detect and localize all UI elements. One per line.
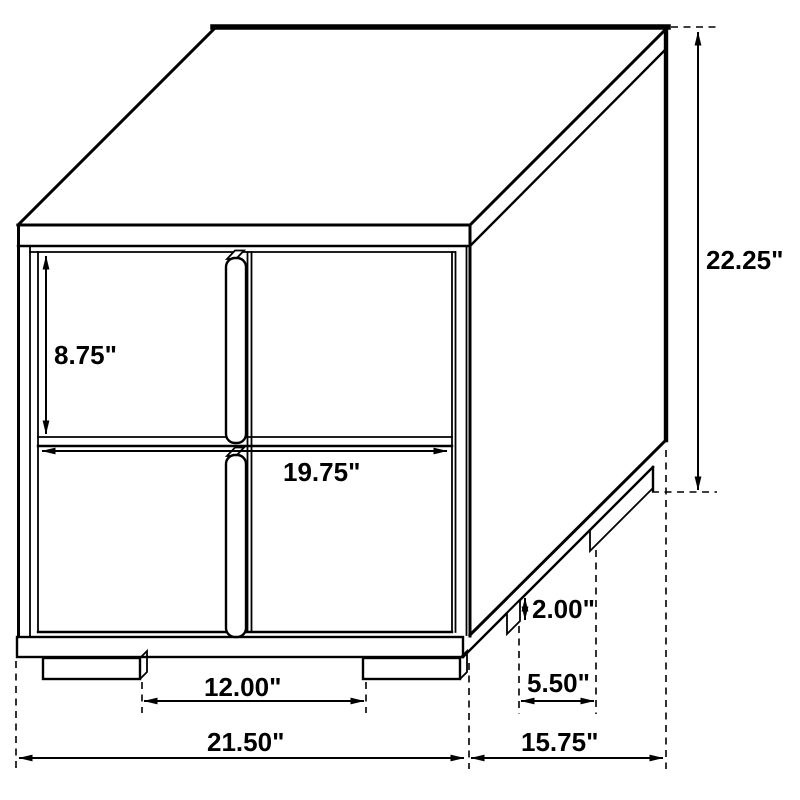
overall-depth-label: 15.75" [521, 727, 598, 757]
dimension-front-leg-spacing: 12.00" [144, 672, 364, 702]
overall-width-label: 21.50" [207, 727, 284, 757]
drawer-handles [226, 251, 246, 638]
dimension-diagram-canvas: 22.25" 8.75" 19.75" 12.00" 21.50" 2.00" … [0, 0, 800, 800]
drawer-height-label: 8.75" [54, 340, 117, 370]
front-leg-spacing-label: 12.00" [204, 672, 281, 702]
side-leg-spacing-label: 5.50" [527, 668, 590, 698]
nightstand-dimension-diagram: 22.25" 8.75" 19.75" 12.00" 21.50" 2.00" … [0, 0, 800, 800]
drawer-width-label: 19.75" [283, 457, 360, 487]
dimension-overall-depth: 15.75" [471, 727, 663, 758]
bottom-drawer-handle [226, 448, 246, 638]
top-panel [18, 27, 668, 246]
top-drawer-handle [226, 251, 246, 444]
dimension-overall-height: 22.25" [698, 32, 783, 490]
dimension-overall-width: 21.50" [19, 727, 464, 758]
leg-height-label: 2.00" [532, 594, 595, 624]
front-left-foot [43, 658, 140, 679]
side-panel [470, 28, 666, 635]
base-and-feet [17, 467, 653, 679]
dimension-drawer-height: 8.75" [46, 256, 117, 434]
dimension-side-leg-spacing: 5.50" [521, 668, 594, 701]
dimension-leg-height: 2.00" [525, 594, 595, 624]
front-right-foot [363, 658, 460, 679]
overall-height-label: 22.25" [706, 245, 783, 275]
